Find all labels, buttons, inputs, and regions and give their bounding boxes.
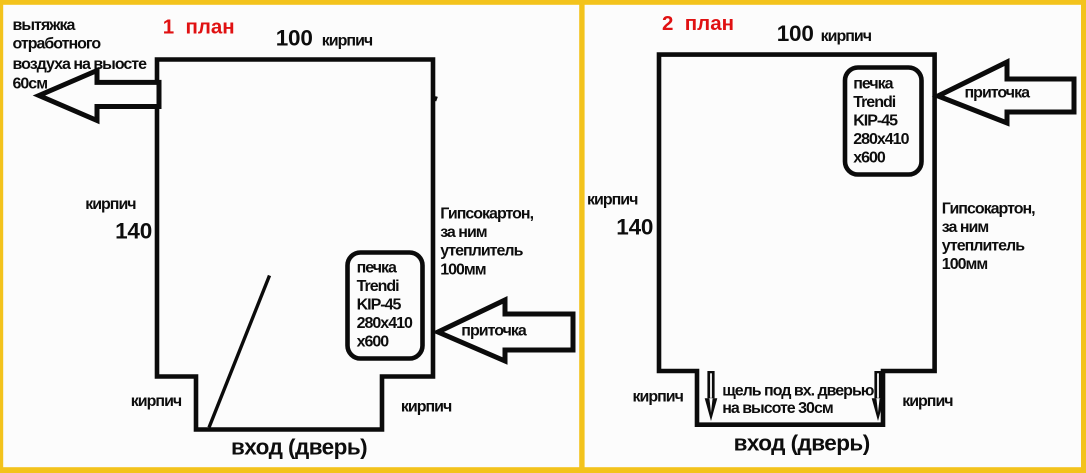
svg-text:печка: печка [357,260,397,277]
svg-text:140: 140 [115,218,152,243]
svg-text:100: 100 [777,21,814,46]
svg-text:вход (дверь): вход (дверь) [231,435,367,460]
svg-text:кирпич: кирпич [322,32,373,49]
svg-text:100мм: 100мм [440,261,486,278]
svg-text:кирпич: кирпич [131,393,182,410]
svg-text:воздуха на выосте: воздуха на выосте [13,56,148,73]
svg-text:кирпич: кирпич [633,388,684,405]
svg-text:Гипсокартон,: Гипсокартон, [942,201,1035,218]
svg-text:100мм: 100мм [942,256,988,273]
svg-text:кирпич: кирпич [587,191,638,208]
svg-text:60см: 60см [13,76,48,93]
svg-text:100: 100 [276,25,313,50]
svg-text:х600: х600 [853,149,886,166]
svg-text:кирпич: кирпич [821,28,872,45]
svg-text:утеплитель: утеплитель [440,243,523,260]
svg-text:Trendi: Trendi [853,94,896,111]
svg-text:280x410: 280x410 [357,315,413,332]
svg-text:кирпич: кирпич [902,393,953,410]
svg-text:KIP-45: KIP-45 [357,297,402,314]
svg-text:за ним: за ним [440,224,487,241]
svg-text:отработного: отработного [13,36,102,53]
svg-text:щель под вх. дверью: щель под вх. дверью [722,382,875,399]
svg-text:280x410: 280x410 [853,131,909,148]
svg-text:приточка: приточка [965,85,1031,102]
svg-text:1 план: 1 план [163,15,235,38]
svg-text:кирпич: кирпич [401,399,452,416]
svg-text:на высоте 30см: на высоте 30см [722,400,833,417]
svg-text:вход (дверь): вход (дверь) [734,430,870,455]
svg-text:140: 140 [616,214,653,239]
svg-text:кирпич: кирпич [85,196,136,213]
svg-text:вытяжка: вытяжка [13,17,76,34]
svg-text:приточка: приточка [461,322,527,339]
svg-text:за ним: за ним [942,219,989,236]
svg-text:Гипсокартон,: Гипсокартон, [440,206,533,223]
svg-text:Trendi: Trendi [357,278,400,295]
svg-text:х600: х600 [357,334,390,351]
svg-text:KIP-45: KIP-45 [853,112,898,129]
svg-text:2 план: 2 план [662,12,734,35]
svg-text:печка: печка [853,75,893,92]
svg-text:утеплитель: утеплитель [942,237,1025,254]
